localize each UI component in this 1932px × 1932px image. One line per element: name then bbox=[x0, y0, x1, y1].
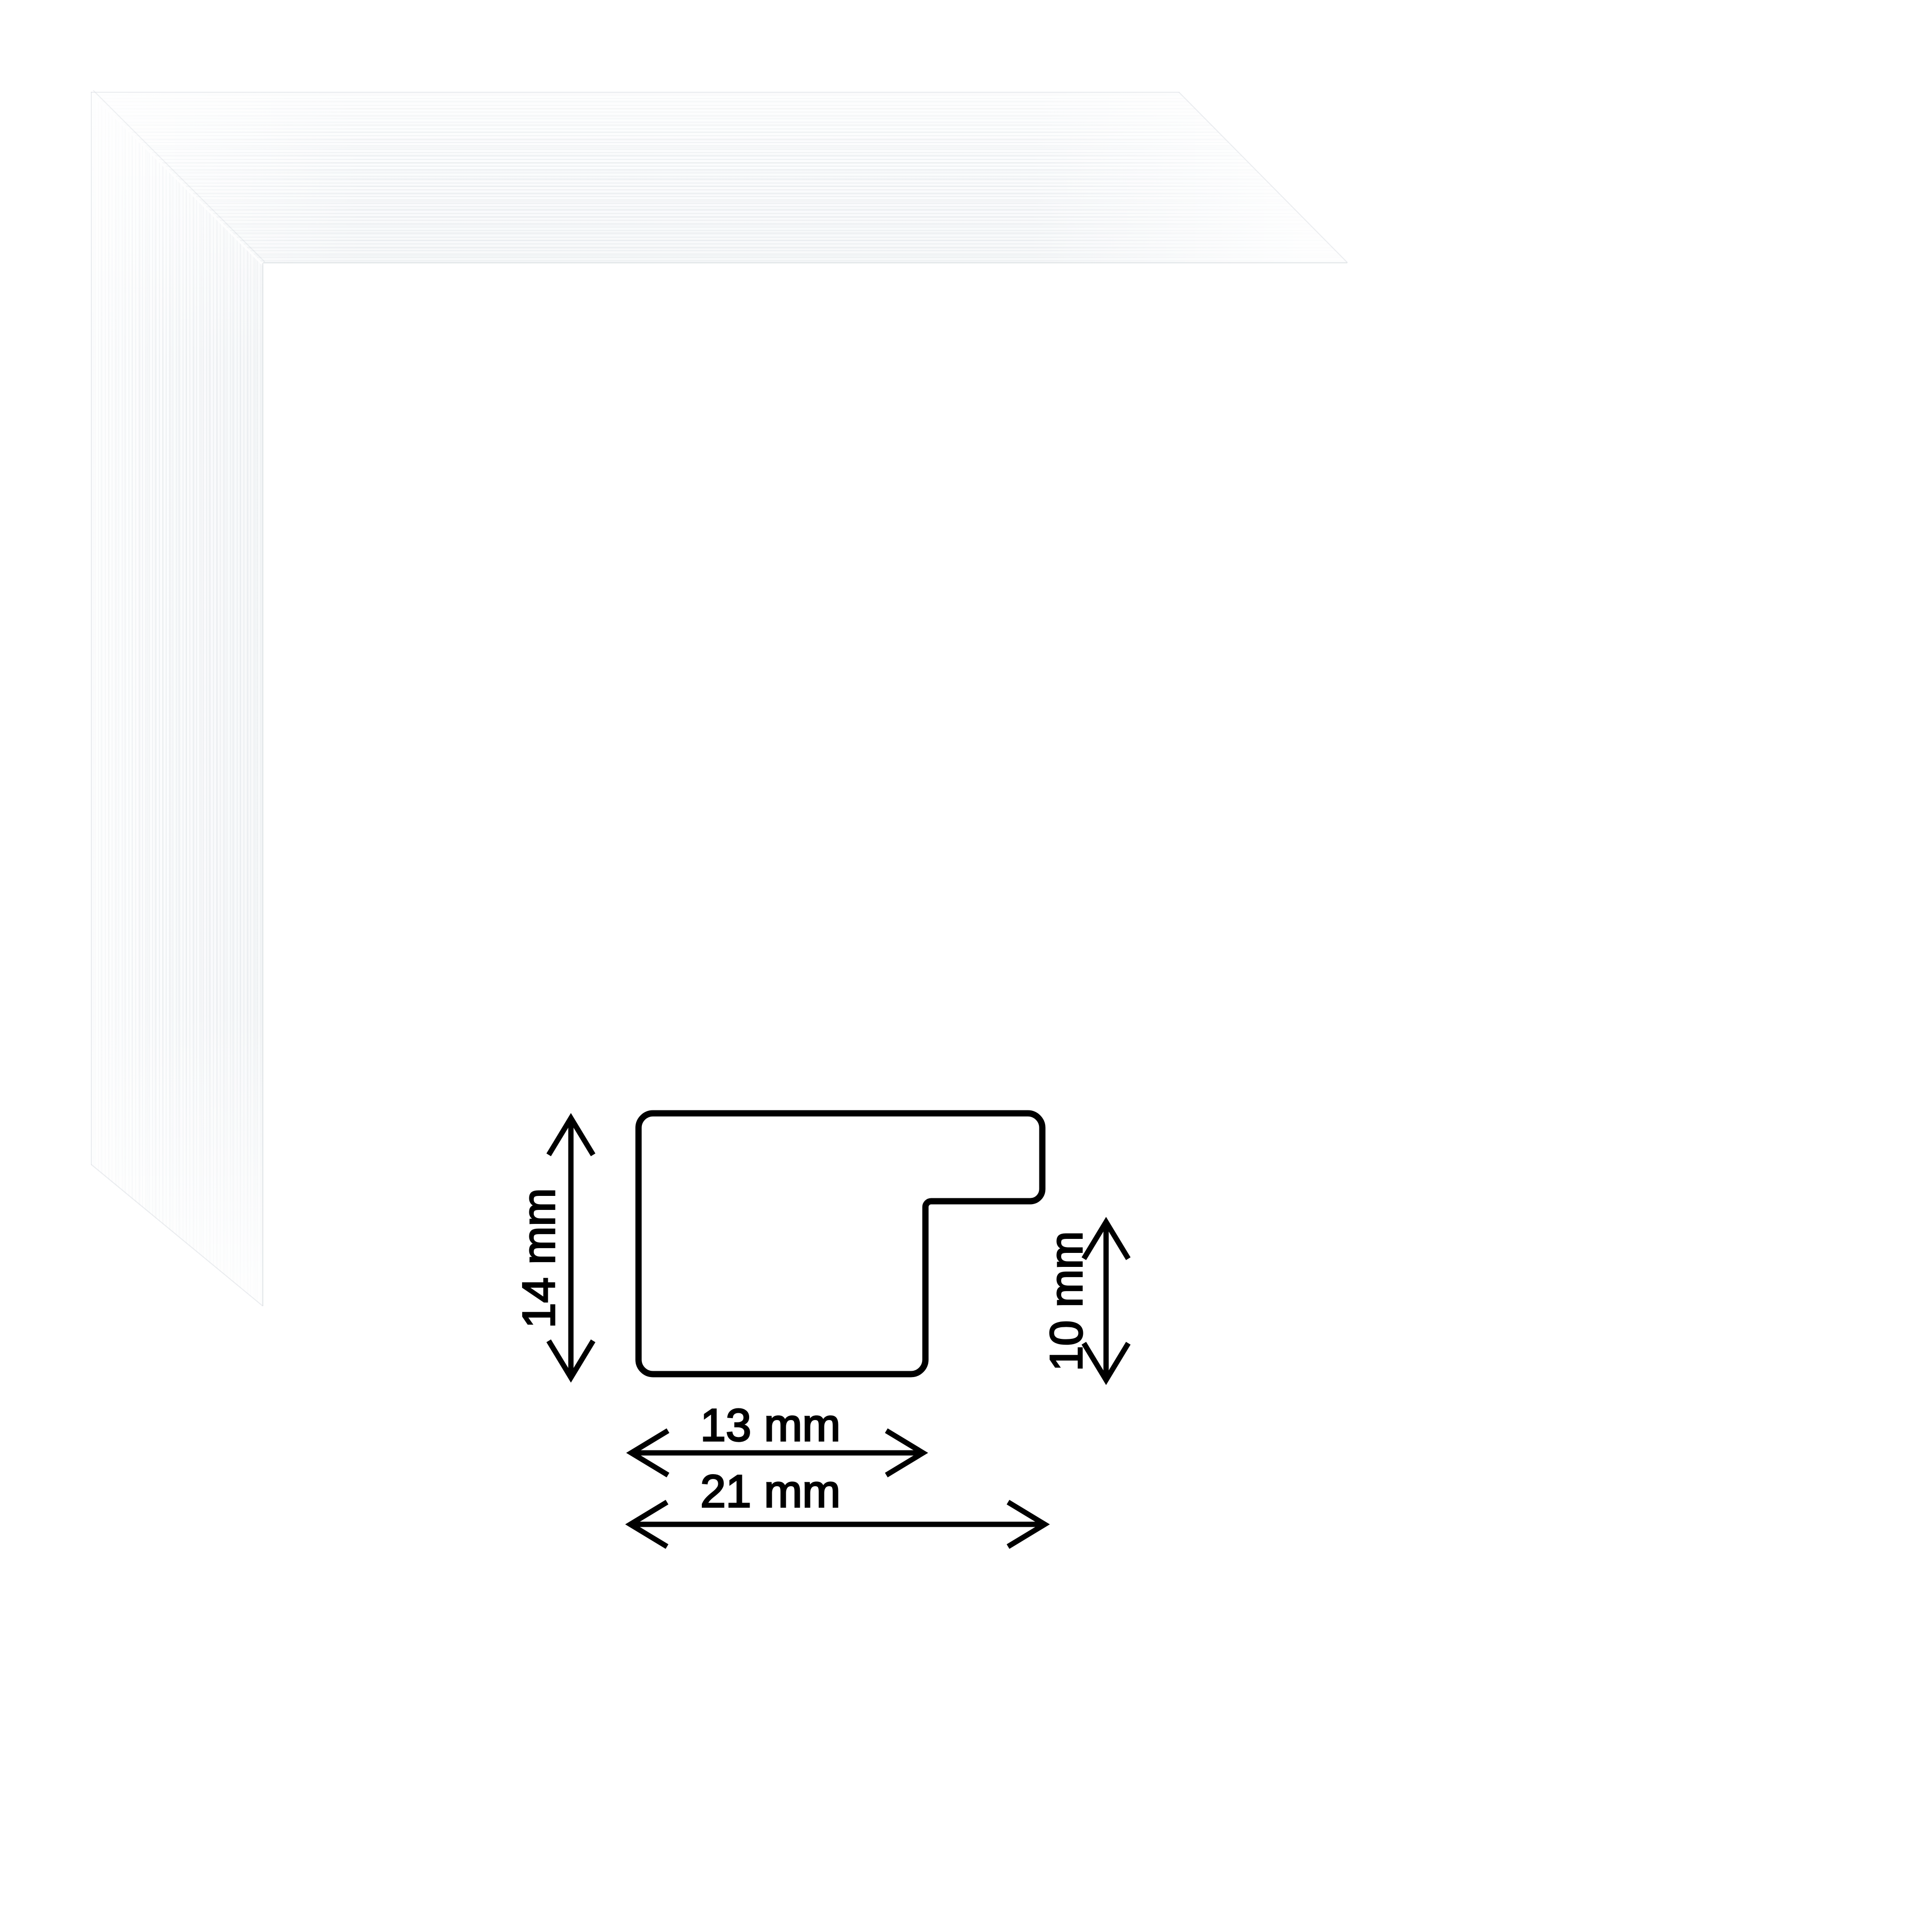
product-image-canvas: 14 mm 10 mm 13 mm 21 mm bbox=[0, 0, 1932, 1932]
moulding-profile-outline bbox=[639, 1113, 1042, 1374]
frame-and-diagram-overlay: 14 mm 10 mm 13 mm 21 mm bbox=[0, 0, 1932, 1932]
total-width-dimension-label: 21 mm bbox=[700, 1466, 840, 1517]
height-dimension-label: 14 mm bbox=[513, 1188, 565, 1328]
frame-miter-cut-right bbox=[1179, 92, 1348, 263]
face-width-dimension-label: 13 mm bbox=[700, 1400, 840, 1451]
rabbet-dimension-label: 10 mm bbox=[1041, 1231, 1092, 1371]
frame-miter-cut-bottom bbox=[91, 1165, 263, 1306]
miter-joint-line bbox=[92, 94, 263, 265]
